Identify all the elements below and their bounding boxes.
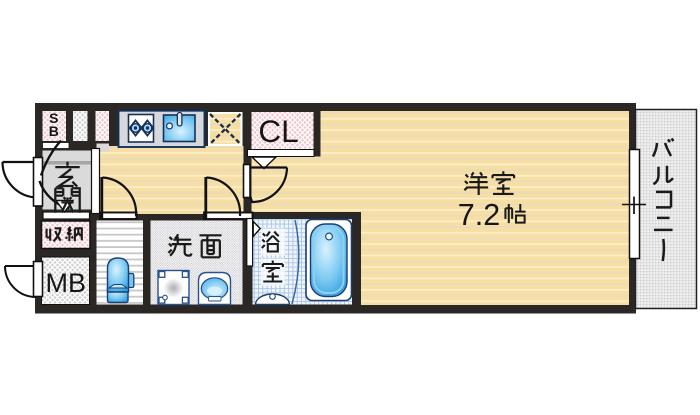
svg-text:MB: MB (46, 268, 87, 298)
svg-text:CL: CL (258, 113, 298, 149)
svg-text:7.2: 7.2 (458, 198, 500, 232)
svg-text:B: B (49, 123, 59, 139)
